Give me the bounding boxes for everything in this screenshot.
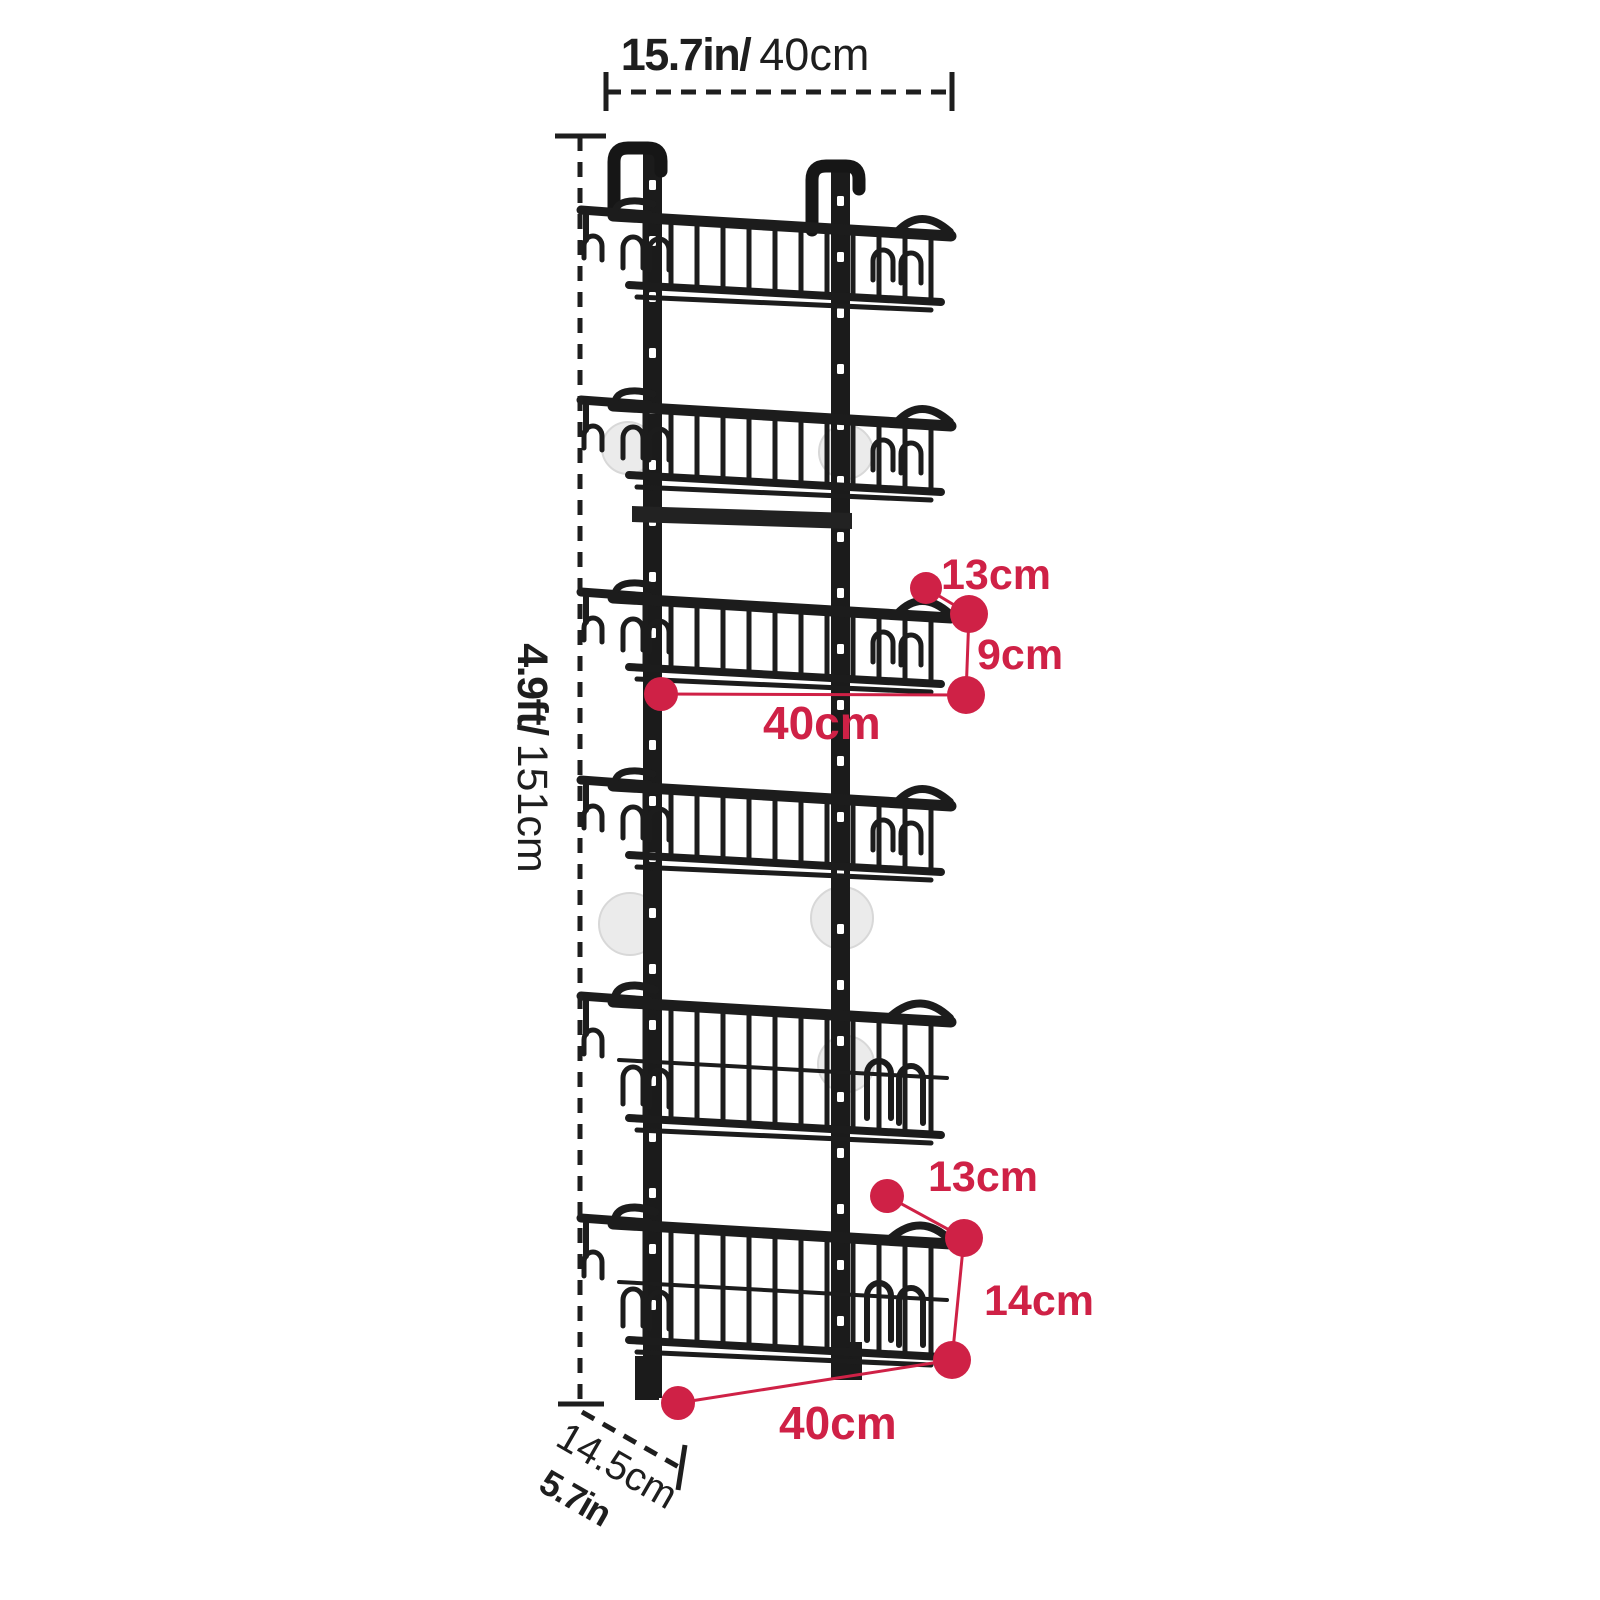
rack-diagram-svg (0, 0, 1600, 1600)
rail-holes-right (837, 196, 844, 1326)
rail-foot-left (635, 1356, 659, 1400)
total-height-label: 4.9ft/ 151cm (501, 608, 553, 908)
top-width-metric: 40cm (759, 32, 869, 77)
top-width-imperial: 15.7in/ (621, 32, 751, 77)
bottom-basket-width-label: 40cm (779, 1400, 897, 1446)
basket-tier-5 (581, 986, 951, 1143)
total-height-imperial: 4.9ft/ (510, 643, 553, 734)
basket-tier-3 (581, 583, 951, 692)
middle-basket-height-label: 9cm (977, 634, 1063, 677)
product-dimension-diagram: 15.7in/ 40cm 4.9ft/ 151cm 13cm 9cm 40cm … (0, 0, 1600, 1600)
bottom-basket-height-label: 14cm (984, 1280, 1094, 1323)
mounting-rails (635, 152, 862, 1400)
bottom-basket-depth-label: 13cm (928, 1156, 1038, 1199)
basket-tier-4 (581, 771, 951, 880)
support-crossbar (632, 506, 852, 529)
top-width-label: 15.7in/ 40cm (577, 32, 913, 77)
total-height-metric: 151cm (510, 744, 553, 873)
middle-basket-width-label: 40cm (763, 700, 881, 746)
middle-basket-depth-label: 13cm (941, 554, 1051, 597)
basket-tier-6 (581, 1208, 951, 1365)
basket-tier-1 (581, 201, 951, 310)
